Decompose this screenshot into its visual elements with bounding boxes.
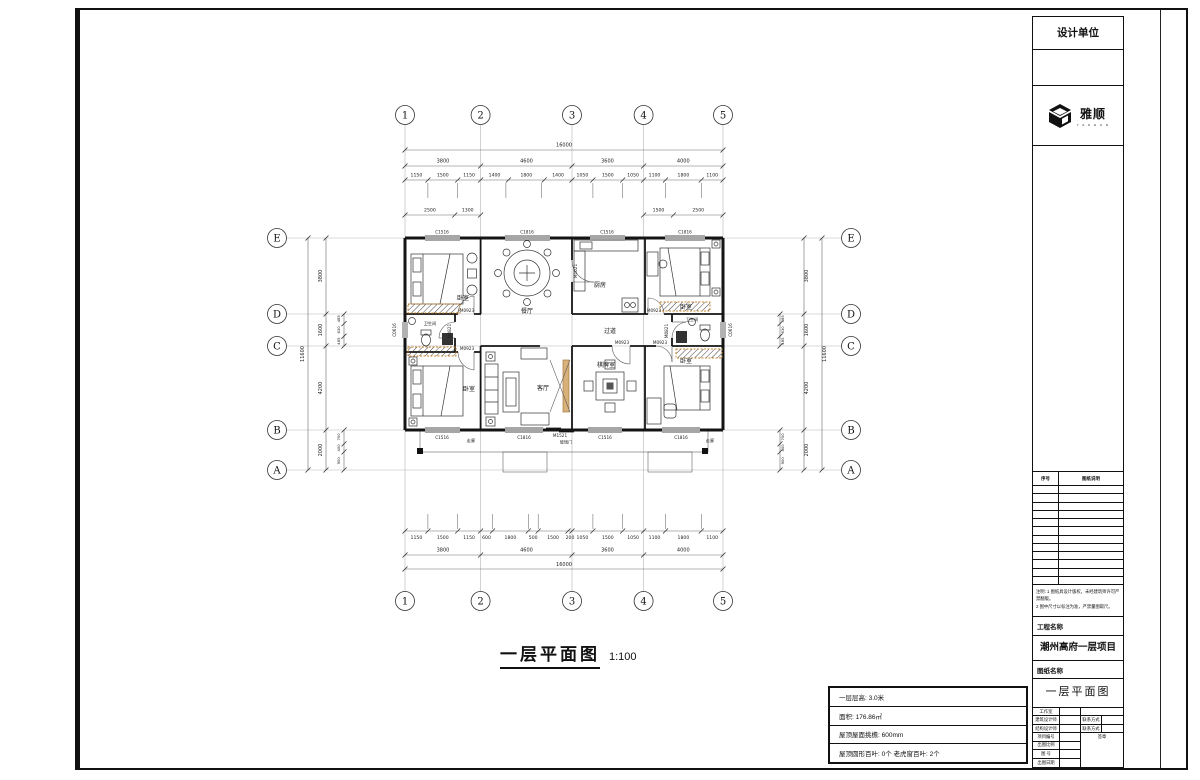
dim-text: 1800 [520,173,532,179]
project-name: 潮州高府一层项目 [1033,636,1123,661]
dimensions-right: 11600 3800 1600 4200 2000 485 630 485 70… [778,236,829,473]
info-row: 屋顶屋面挑檐: 600mm [830,726,1026,745]
project-name-label: 工程名称 [1033,617,1123,636]
window-label: C1816 [678,230,692,235]
dimensions-left: 11600 3800 1600 4200 2000 485 630 485 70… [300,236,347,473]
title-block-fields: 工作室 建筑设计师 联系方式 结构设计师 联系方式 项目编号 签章 出图比例 图… [1033,708,1123,767]
grid-bubble-label: E [273,234,280,245]
dim-text: 1150 [463,173,475,179]
info-row: 一层层高: 3.0米 [830,688,1026,707]
col-serial-no: 序号 [1033,472,1059,485]
grid-bubble-label: E [847,234,854,245]
window-label: C1516 [600,230,614,235]
dim-text: 4200 [318,382,324,395]
dim-text: 11600 [300,346,306,362]
dim-text: 1100 [649,173,661,179]
grid-bubble-label: D [273,310,281,321]
drawing-list-row [1033,519,1123,527]
dim-text: 630 [336,326,341,334]
room-label: 客厅 [537,384,549,392]
dim-text: 3800 [804,270,810,283]
dim-text: 2000 [318,444,324,457]
dim-text: 1050 [627,535,639,541]
title-block: 设计单位 雅顺 Y A S H U N 序号 图纸说明 [1032,16,1124,768]
dim-text: 1100 [706,535,718,541]
drawing-sheet: 1 2 3 4 5 1 2 3 4 5 E D C B A E D C B A [0,0,1200,780]
drawing-name-label: 图纸名称 [1033,661,1123,679]
room-label: 棋牌室 [597,361,615,369]
frame-fold-line [1160,10,1161,768]
dim-text: 2000 [804,444,810,457]
dim-text: 1050 [627,173,639,179]
field-date-value [1060,759,1081,767]
dim-text: 1800 [505,535,517,541]
field-contact-value [1102,716,1123,724]
drawing-list-header: 序号 图纸说明 [1033,472,1123,486]
drawing-list-row [1033,577,1123,584]
dim-text: 1500 [547,535,559,541]
notes-line: 2 图中尺寸以标注为准，严禁量图取尺。 [1036,603,1120,610]
drawing-list-row [1033,560,1123,568]
grid-bubble-label: 1 [402,111,408,122]
title-block-notes: 注明: 1 图纸具设计版权，未经建筑师许可严禁翻版。 2 图中尺寸以标注为准，严… [1033,585,1123,617]
window-label: C0616 [728,323,733,337]
dim-text: 485 [780,337,785,345]
notes-line: 注明: 1 图纸具设计版权，未经建筑师许可严禁翻版。 [1036,588,1120,603]
field-contact-label: 联系方式 [1081,716,1102,724]
dim-text: 1500 [437,173,449,179]
field-architect-label: 建筑设计师 [1033,716,1060,724]
door-label: M0923 [647,308,662,313]
grid-bubble-label: C [847,342,855,353]
dim-text: 700 [336,433,341,441]
dim-text: 200 [566,535,575,541]
field-projectno-value [1060,733,1081,741]
drawing-list-row [1033,569,1123,577]
logo-subtext: Y A S H U N [1077,123,1110,127]
dim-text: 500 [529,535,538,541]
grid-bubble-label: A [846,466,855,477]
field-scale-value [1060,742,1081,750]
dim-text: 700 [780,433,785,441]
plan-title-scale: 1:100 [609,651,637,663]
dim-text: 1600 [318,324,324,337]
drawing-list-row [1033,503,1123,511]
drawing-list-table: 序号 图纸说明 [1033,472,1123,585]
title-block-empty-cell [1033,146,1123,472]
plan-title-text: 一层平面图 [500,640,600,669]
field-studio-label: 工作室 [1033,708,1060,716]
frame-binding-edge [75,8,80,770]
field-seal-area: 签章 [1081,733,1123,767]
dim-text: 1600 [804,324,810,337]
room-label: 过道 [604,327,616,335]
room-label: 卧室 [463,385,475,393]
plan-title: 一层平面图 1:100 [500,640,637,669]
window-label: C1516 [435,435,449,440]
grid-bubble-label: 3 [569,597,575,608]
dim-text: 11600 [822,346,828,362]
dim-text: 3600 [601,159,614,165]
field-figno-value [1060,750,1081,758]
info-row: 屋顶圆形百叶: 0个 老虎窗百叶: 2个 [830,744,1026,762]
field-architect-value [1060,716,1081,724]
dim-text: 3800 [318,270,324,283]
dim-text: 1150 [411,535,423,541]
room-label: 走廊 [467,437,475,444]
grid-bubble-label: 1 [402,597,408,608]
dim-text: 400 [780,444,785,452]
dim-text: 600 [482,535,491,541]
field-figno-label: 图 号 [1033,750,1060,758]
drawing-list-row [1033,544,1123,552]
grid-bubble-label: A [272,466,281,477]
field-contact2-label: 联系方式 [1081,725,1102,733]
window-label: C0616 [392,323,397,337]
dim-text: 900 [336,457,341,465]
grid-bubble-label: D [847,310,855,321]
dim-text: 16000 [556,143,572,149]
field-studio-value [1060,708,1081,716]
grid-bubble-label: 2 [477,111,483,122]
plan-info-box: 一层层高: 3.0米 面积: 176.86㎡ 屋顶屋面挑檐: 600mm 屋顶圆… [828,686,1028,764]
drawing-list-row [1033,494,1123,502]
drawing-name: 一层平面图 [1033,679,1123,708]
dim-text: 4600 [520,548,533,554]
window-label: C1816 [517,435,531,440]
dim-text: 485 [336,337,341,345]
dim-text: 3800 [437,548,450,554]
dim-text: 4200 [804,382,810,395]
dim-text: 900 [780,457,785,465]
drawing-list-row [1033,552,1123,560]
grid-bubble-label: 2 [477,597,483,608]
door-label: M0923 [615,340,630,345]
dim-text: 1300 [462,208,474,214]
drawing-list-row [1033,527,1123,535]
room-label: 餐厅 [521,307,533,315]
drawing-list-row [1033,511,1123,519]
grid-bubble-label: B [847,426,854,437]
window-label: C1516 [598,435,612,440]
dim-text: 1800 [678,535,690,541]
dim-text: 1100 [649,535,661,541]
col-drawing-desc: 图纸说明 [1059,472,1123,485]
dim-text: 3600 [601,548,614,554]
drawing-list-row [1033,536,1123,544]
field-contact2-value [1102,725,1123,733]
dim-text: 16000 [556,562,572,568]
field-scale-label: 出图比例 [1033,742,1060,750]
door-label: 玻璃门 [560,439,573,446]
field-studio-extra [1081,708,1123,716]
room-label: 卧室 [680,303,692,311]
room-label: 卫生间 [686,316,699,323]
dim-text: 1050 [577,173,589,179]
dim-text: 630 [780,326,785,334]
room-label: 卧室 [680,357,692,365]
door-label: M0821 [664,324,669,339]
grid-bubbles: 1 2 3 4 5 1 2 3 4 5 E D C B A E D C B A [268,106,861,611]
door-label: M1021 [573,264,578,279]
dim-text: 1500 [437,535,449,541]
dim-text: 1500 [602,535,614,541]
dim-text: 4000 [677,159,690,165]
window-label: C1816 [674,435,688,440]
field-structeng-value [1060,725,1081,733]
dim-text: 485 [780,315,785,323]
room-label: 卧室 [457,294,469,302]
dim-text: 1800 [678,173,690,179]
dim-text: 2500 [424,208,436,214]
dim-text: 1500 [653,208,665,214]
dim-text: 4600 [520,159,533,165]
field-projectno-label: 项目编号 [1033,733,1060,741]
grid-bubble-label: 5 [720,597,726,608]
grid-bubble-label: 3 [569,111,575,122]
door-label: M0923 [460,308,475,313]
door-label: M1521 [553,433,568,438]
dim-text: 1150 [411,173,423,179]
field-date-label: 出图日期 [1033,759,1060,767]
door-label: M0923 [460,346,475,351]
grid-bubble-label: C [273,342,281,353]
door-label: M0923 [653,340,668,345]
window-label: C1516 [435,230,449,235]
logo-text: 雅顺 [1080,105,1106,122]
room-label: 走廊 [706,437,714,444]
dimensions-top: 16000 3800 4600 3600 4000 1150 1500 1150… [403,143,726,218]
furniture [408,240,722,426]
dim-text: 1400 [552,173,564,179]
title-block-empty-cell [1033,50,1123,86]
dim-text: 4000 [677,548,690,554]
grid-bubble-label: 4 [640,111,646,122]
field-structeng-label: 结构设计师 [1033,725,1060,733]
room-label: 卫生间 [424,320,437,327]
floor-plan: 1 2 3 4 5 1 2 3 4 5 E D C B A E D C B A [240,85,890,630]
info-row: 面积: 176.86㎡ [830,707,1026,726]
dim-text: 1150 [463,535,475,541]
room-label: 厨房 [594,281,606,289]
grid-bubble-label: B [273,426,280,437]
design-unit-header: 设计单位 [1033,17,1123,50]
dim-text: 2500 [692,208,704,214]
dim-text: 400 [336,444,341,452]
dim-text: 1400 [489,173,501,179]
grid-bubble-label: 4 [640,597,646,608]
grid-lines [286,124,842,592]
door-label: M0821 [447,324,452,339]
dimensions-bottom: 1150 1500 1150 600 1800 500 1500 200 105… [403,514,726,572]
yashun-cube-logo-icon [1047,103,1073,129]
dim-text: 1100 [706,173,718,179]
grid-bubble-label: 5 [720,111,726,122]
dim-text: 3800 [437,159,450,165]
dim-text: 1500 [602,173,614,179]
company-logo: 雅顺 Y A S H U N [1033,86,1123,146]
window-label: C1816 [520,230,534,235]
drawing-list-row [1033,486,1123,494]
dim-text: 1050 [577,535,589,541]
dim-text: 485 [336,315,341,323]
